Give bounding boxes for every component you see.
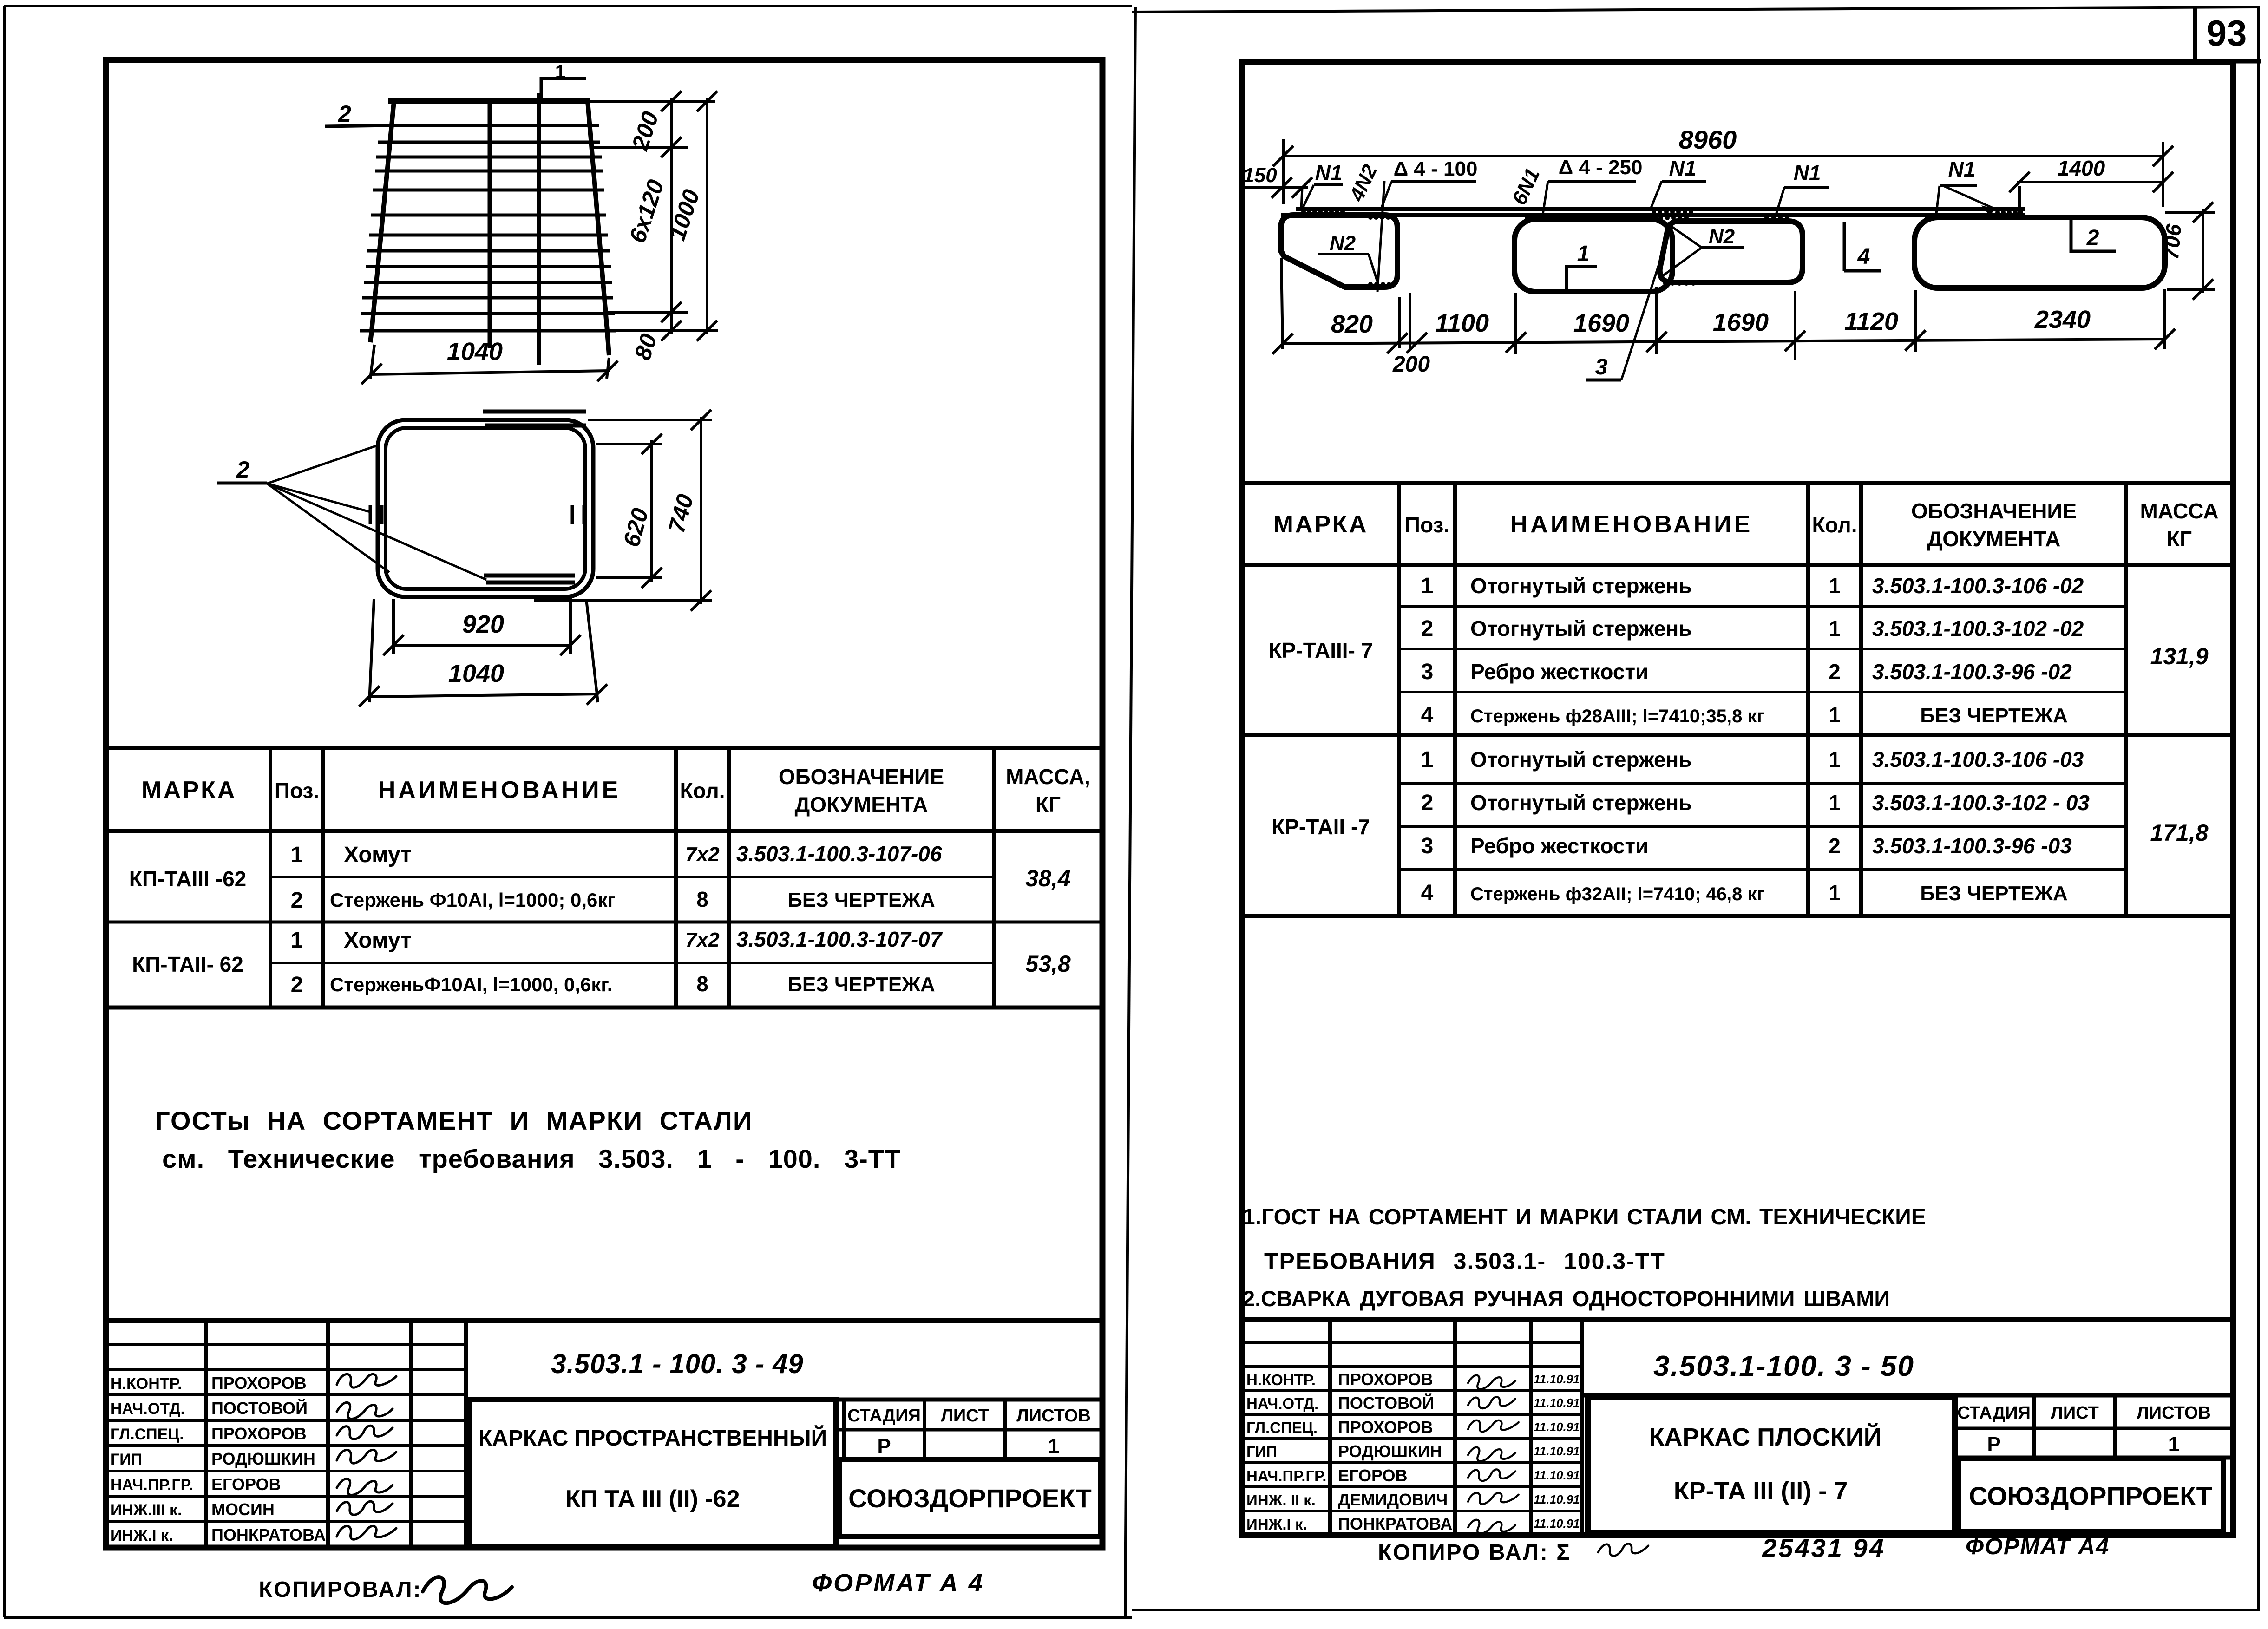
svg-text:1: 1	[1421, 747, 1434, 772]
svg-text:КР-ТАIII- 7: КР-ТАIII- 7	[1269, 638, 1373, 662]
svg-text:КАРКАС ПЛОСКИЙ: КАРКАС ПЛОСКИЙ	[1649, 1423, 1882, 1451]
svg-text:7х2: 7х2	[685, 929, 720, 951]
svg-text:Стержень ф32АII; l=7410; 46,8: Стержень ф32АII; l=7410; 46,8 кг	[1470, 884, 1764, 904]
svg-text:1: 1	[1829, 791, 1841, 815]
svg-text:N1: N1	[1315, 161, 1343, 185]
svg-text:ДОКУМЕНТА: ДОКУМЕНТА	[794, 792, 928, 817]
svg-text:4: 4	[1421, 881, 1434, 905]
svg-text:СОЮЗДОРПРОЕКТ: СОЮЗДОРПРОЕКТ	[848, 1484, 1092, 1513]
svg-text:Хомут: Хомут	[344, 843, 412, 867]
svg-text:4: 4	[1857, 244, 1870, 269]
svg-text:Δ 4 - 100: Δ 4 - 100	[1394, 157, 1478, 180]
svg-text:8: 8	[696, 972, 708, 996]
svg-text:ИНЖ.I к.: ИНЖ.I к.	[1246, 1516, 1307, 1533]
svg-text:2: 2	[291, 973, 303, 997]
svg-text:1: 1	[1829, 703, 1841, 727]
svg-text:ПОСТОВОЙ: ПОСТОВОЙ	[211, 1398, 308, 1418]
svg-text:МАРКА: МАРКА	[142, 777, 237, 804]
svg-text:ПРОХОРОВ: ПРОХОРОВ	[211, 1424, 307, 1443]
svg-text:8960: 8960	[1679, 125, 1737, 154]
svg-text:2: 2	[1829, 834, 1841, 858]
svg-text:ЕГОРОВ: ЕГОРОВ	[1338, 1466, 1407, 1485]
svg-text:РОДЮШКИН: РОДЮШКИН	[211, 1449, 315, 1468]
svg-text:3.503.1-100.3-106 -02: 3.503.1-100.3-106 -02	[1872, 574, 2084, 598]
svg-text:1690: 1690	[1573, 309, 1629, 337]
svg-text:1: 1	[291, 928, 303, 953]
svg-text:171,8: 171,8	[2150, 820, 2208, 846]
svg-text:Отогнутый стержень: Отогнутый стержень	[1470, 791, 1692, 815]
svg-text:СтерженьФ10АI, l=1000, 0,6кг.: СтерженьФ10АI, l=1000, 0,6кг.	[330, 974, 612, 995]
svg-text:ПОНКРАТОВА: ПОНКРАТОВА	[211, 1525, 326, 1544]
svg-text:СТАДИЯ: СТАДИЯ	[1957, 1403, 2031, 1423]
svg-text:ИНЖ. II к.: ИНЖ. II к.	[1246, 1492, 1316, 1509]
svg-text:Р: Р	[877, 1435, 891, 1458]
svg-text:1100: 1100	[1435, 309, 1489, 337]
svg-text:ГИП: ГИП	[111, 1451, 142, 1468]
svg-text:150: 150	[1243, 164, 1277, 187]
svg-text:КГ: КГ	[2167, 527, 2192, 551]
svg-text:1400: 1400	[2058, 156, 2105, 180]
svg-text:11.10.91: 11.10.91	[1534, 1468, 1580, 1482]
svg-text:ИНЖ.III к.: ИНЖ.III к.	[111, 1501, 182, 1519]
svg-text:КОПИРОВАЛ:: КОПИРОВАЛ:	[259, 1577, 422, 1602]
svg-text:НАЧ.ПР.ГР.: НАЧ.ПР.ГР.	[111, 1476, 193, 1494]
svg-text:ПОНКРАТОВА: ПОНКРАТОВА	[1338, 1514, 1452, 1533]
svg-text:11.10.91: 11.10.91	[1534, 1372, 1580, 1386]
svg-text:ЛИСТ: ЛИСТ	[941, 1406, 989, 1426]
svg-text:КР-ТАII -7: КР-ТАII -7	[1272, 815, 1370, 839]
svg-text:1: 1	[1577, 242, 1590, 266]
svg-text:Хомут: Хомут	[344, 928, 412, 953]
svg-text:11.10.91: 11.10.91	[1534, 1517, 1580, 1531]
svg-text:820: 820	[1331, 310, 1373, 338]
svg-text:2340: 2340	[2034, 306, 2091, 334]
svg-text:КАРКАС ПРОСТРАНСТВЕННЫЙ: КАРКАС ПРОСТРАНСТВЕННЫЙ	[479, 1425, 827, 1451]
svg-text:см. Технические требования: см. Технические требования 3.503. 1 - 10…	[162, 1144, 901, 1173]
svg-text:2: 2	[291, 888, 303, 913]
svg-text:Кол.: Кол.	[680, 779, 725, 803]
svg-text:1: 1	[1421, 574, 1434, 598]
svg-text:2: 2	[1421, 616, 1434, 641]
svg-text:ЛИСТОВ: ЛИСТОВ	[1016, 1406, 1091, 1426]
svg-text:БЕЗ ЧЕРТЕЖА: БЕЗ ЧЕРТЕЖА	[787, 973, 935, 996]
svg-text:ДОКУМЕНТА: ДОКУМЕНТА	[1927, 527, 2060, 551]
svg-text:93: 93	[2207, 13, 2247, 53]
svg-text:8: 8	[696, 887, 708, 911]
svg-text:МАРКА: МАРКА	[1273, 511, 1369, 538]
svg-text:3.503.1-100.3-96 -03: 3.503.1-100.3-96 -03	[1872, 834, 2072, 858]
svg-text:131,9: 131,9	[2150, 643, 2208, 669]
svg-text:Отогнутый стержень: Отогнутый стержень	[1470, 574, 1692, 598]
svg-text:Н.КОНТР.: Н.КОНТР.	[111, 1375, 182, 1393]
svg-text:25431 94: 25431 94	[1762, 1533, 1886, 1563]
svg-text:3.503.1-100.3-96 -02: 3.503.1-100.3-96 -02	[1872, 660, 2072, 684]
svg-text:N1: N1	[1669, 156, 1697, 180]
svg-text:3: 3	[1421, 834, 1434, 858]
svg-text:11.10.91: 11.10.91	[1534, 1396, 1580, 1410]
svg-text:СТАДИЯ: СТАДИЯ	[847, 1406, 921, 1426]
svg-text:ОБОЗНАЧЕНИЕ: ОБОЗНАЧЕНИЕ	[1911, 499, 2077, 523]
svg-text:N1: N1	[1794, 161, 1821, 185]
svg-text:200: 200	[1392, 352, 1430, 377]
svg-text:ЕГОРОВ: ЕГОРОВ	[211, 1475, 281, 1494]
svg-text:3.503.1 - 100. 3 - 49: 3.503.1 - 100. 3 - 49	[551, 1349, 803, 1379]
svg-text:КП-ТАIII -62: КП-ТАIII -62	[129, 867, 246, 891]
svg-text:1040: 1040	[448, 660, 504, 687]
svg-text:ПРОХОРОВ: ПРОХОРОВ	[1338, 1370, 1433, 1389]
svg-text:Р: Р	[1987, 1433, 2000, 1456]
svg-text:N1: N1	[1948, 157, 1976, 181]
svg-text:3: 3	[1595, 355, 1608, 379]
svg-text:1: 1	[1829, 616, 1841, 641]
svg-text:НАЧ.ОТД.: НАЧ.ОТД.	[1246, 1395, 1318, 1412]
svg-text:3.503.1-100.3-106 -03: 3.503.1-100.3-106 -03	[1872, 747, 2084, 772]
svg-text:1.ГОСТ НА СОРТАМЕНТ И МАРКИ: 1.ГОСТ НА СОРТАМЕНТ И МАРКИ СТАЛИ СМ. ТЕ…	[1243, 1205, 1926, 1230]
svg-text:3.503.1-100. 3 - 50: 3.503.1-100. 3 - 50	[1653, 1350, 1914, 1382]
svg-text:ТРЕБОВАНИЯ 3.503.1- 100.3-: ТРЕБОВАНИЯ 3.503.1- 100.3-ТТ	[1264, 1248, 1665, 1274]
svg-text:МАССА,: МАССА,	[1006, 765, 1090, 789]
svg-text:КР-ТА III (II) - 7: КР-ТА III (II) - 7	[1674, 1477, 1848, 1505]
svg-text:2: 2	[1421, 791, 1434, 815]
svg-text:ГЛ.СПЕЦ.: ГЛ.СПЕЦ.	[111, 1426, 184, 1443]
svg-text:2.СВАРКА ДУГОВАЯ РУЧНАЯ ОДН: 2.СВАРКА ДУГОВАЯ РУЧНАЯ ОДНОСТОРОННИМИ Ш…	[1243, 1286, 1890, 1311]
svg-text:МАССА: МАССА	[2140, 499, 2219, 523]
svg-text:Отогнутый стержень: Отогнутый стержень	[1470, 747, 1692, 772]
svg-text:2: 2	[338, 101, 351, 127]
svg-text:Поз.: Поз.	[1405, 513, 1449, 537]
svg-text:ФОРМАТ А 4: ФОРМАТ А 4	[812, 1569, 984, 1597]
svg-text:ДЕМИДОВИЧ: ДЕМИДОВИЧ	[1338, 1490, 1448, 1509]
svg-text:КП-ТАII- 62: КП-ТАII- 62	[132, 952, 243, 976]
svg-text:53,8: 53,8	[1025, 951, 1071, 977]
svg-text:Δ 4 - 250: Δ 4 - 250	[1559, 156, 1643, 179]
svg-text:ГОСТы НА СОРТАМЕНТ И МАРКИ: ГОСТы НА СОРТАМЕНТ И МАРКИ СТАЛИ	[155, 1106, 753, 1135]
svg-text:ГИП: ГИП	[1246, 1443, 1277, 1460]
svg-text:Кол.: Кол.	[1812, 513, 1857, 537]
svg-text:МОСИН: МОСИН	[211, 1500, 275, 1519]
svg-text:НАИМЕНОВАНИЕ: НАИМЕНОВАНИЕ	[378, 777, 621, 804]
svg-text:11.10.91: 11.10.91	[1534, 1444, 1580, 1458]
svg-text:N2: N2	[1709, 225, 1735, 248]
svg-text:2: 2	[2086, 226, 2099, 250]
svg-text:2: 2	[1829, 660, 1841, 684]
svg-text:Стержень ф28АIII; l=7410;35,8: Стержень ф28АIII; l=7410;35,8 кг	[1470, 706, 1764, 726]
svg-text:КП ТА III (II) -62: КП ТА III (II) -62	[566, 1485, 740, 1512]
svg-text:ГЛ.СПЕЦ.: ГЛ.СПЕЦ.	[1246, 1419, 1318, 1436]
svg-text:1120: 1120	[1844, 307, 1898, 335]
svg-text:2: 2	[236, 457, 249, 483]
svg-text:КОПИРО ВАЛ: Σ: КОПИРО ВАЛ: Σ	[1378, 1540, 1571, 1565]
svg-text:ПРОХОРОВ: ПРОХОРОВ	[1338, 1418, 1433, 1437]
svg-text:N2: N2	[1330, 232, 1356, 255]
svg-text:БЕЗ ЧЕРТЕЖА: БЕЗ ЧЕРТЕЖА	[787, 889, 935, 911]
svg-text:3: 3	[1421, 660, 1434, 684]
svg-text:НАЧ.ОТД.: НАЧ.ОТД.	[111, 1400, 185, 1418]
svg-text:РОДЮШКИН: РОДЮШКИН	[1338, 1442, 1442, 1461]
svg-text:3.503.1-100.3-102 - 03: 3.503.1-100.3-102 - 03	[1872, 791, 2090, 815]
svg-text:Поз.: Поз.	[275, 779, 319, 803]
svg-text:920: 920	[462, 610, 504, 638]
svg-text:Н.КОНТР.: Н.КОНТР.	[1246, 1371, 1316, 1388]
svg-text:1: 1	[291, 843, 303, 867]
svg-text:7х2: 7х2	[685, 843, 720, 866]
svg-text:ПРОХОРОВ: ПРОХОРОВ	[211, 1374, 307, 1393]
svg-text:11.10.91: 11.10.91	[1534, 1492, 1580, 1506]
svg-text:1040: 1040	[447, 338, 503, 366]
svg-text:ЛИСТ: ЛИСТ	[2051, 1403, 2099, 1423]
svg-text:КГ: КГ	[1036, 792, 1061, 817]
svg-text:Отогнутый стержень: Отогнутый стержень	[1470, 616, 1692, 641]
svg-text:БЕЗ ЧЕРТЕЖА: БЕЗ ЧЕРТЕЖА	[1920, 882, 2068, 905]
svg-text:ОБОЗНАЧЕНИЕ: ОБОЗНАЧЕНИЕ	[779, 765, 944, 789]
svg-text:ИНЖ.I к.: ИНЖ.I к.	[111, 1527, 173, 1544]
svg-text:1690: 1690	[1713, 308, 1769, 336]
svg-text:1: 1	[1829, 574, 1841, 598]
svg-text:НАИМЕНОВАНИЕ: НАИМЕНОВАНИЕ	[1510, 511, 1753, 538]
svg-text:ФОРМАТ А4: ФОРМАТ А4	[1966, 1533, 2110, 1559]
svg-text:3.503.1-100.3-102 -02: 3.503.1-100.3-102 -02	[1872, 616, 2084, 641]
svg-text:3.503.1-100.3-107-07: 3.503.1-100.3-107-07	[736, 927, 943, 951]
svg-text:1: 1	[1048, 1435, 1059, 1458]
svg-text:ПОСТОВОЙ: ПОСТОВОЙ	[1338, 1393, 1434, 1413]
svg-text:Стержень Ф10АI, l=1000; 0,6кг: Стержень Ф10АI, l=1000; 0,6кг	[330, 889, 616, 911]
svg-text:38,4: 38,4	[1025, 865, 1070, 891]
svg-text:1: 1	[1829, 881, 1841, 905]
svg-text:3.503.1-100.3-107-06: 3.503.1-100.3-107-06	[736, 842, 942, 866]
svg-text:БЕЗ ЧЕРТЕЖА: БЕЗ ЧЕРТЕЖА	[1920, 704, 2068, 727]
svg-text:4: 4	[1421, 703, 1434, 727]
svg-text:СОЮЗДОРПРОЕКТ: СОЮЗДОРПРОЕКТ	[1969, 1481, 2212, 1511]
svg-text:НАЧ.ПР.ГР.: НАЧ.ПР.ГР.	[1246, 1467, 1326, 1485]
svg-text:ЛИСТОВ: ЛИСТОВ	[2137, 1403, 2211, 1423]
svg-text:Ребро жесткости: Ребро жесткости	[1470, 834, 1648, 858]
svg-text:Ребро жесткости: Ребро жесткости	[1470, 660, 1648, 684]
svg-text:1: 1	[1829, 747, 1841, 772]
svg-text:11.10.91: 11.10.91	[1534, 1420, 1580, 1434]
svg-text:706: 706	[2159, 223, 2186, 261]
svg-text:1: 1	[2168, 1433, 2179, 1456]
